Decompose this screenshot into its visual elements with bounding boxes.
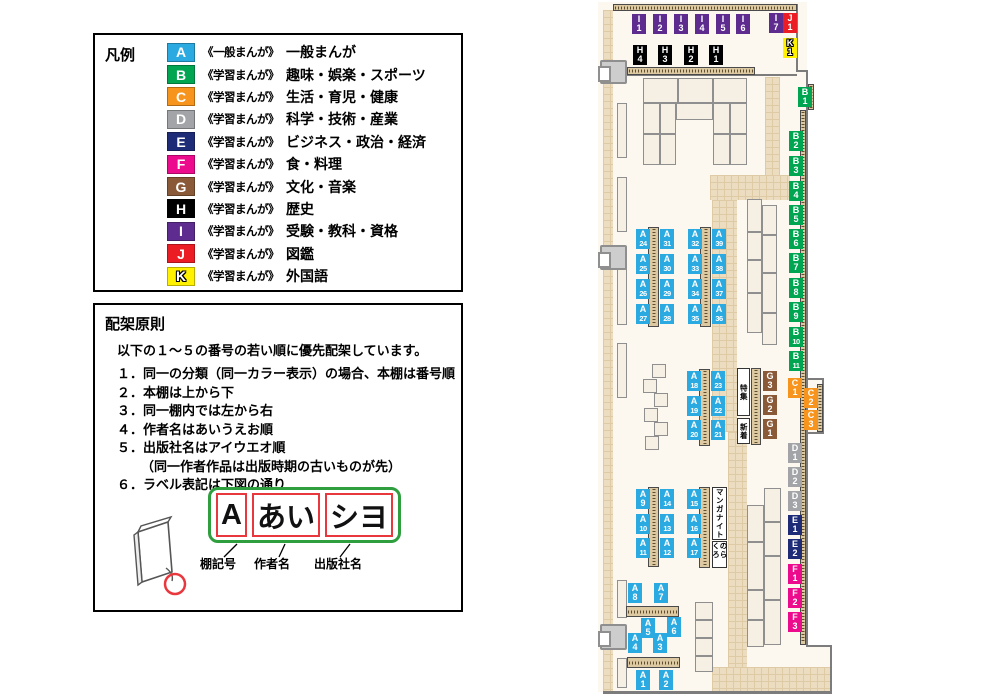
shelf-label-A13: A13 xyxy=(660,514,674,534)
shelf-block xyxy=(747,293,762,333)
legend-item-B: B《学習まんが》趣味・娯楽・スポーツ xyxy=(167,63,426,85)
shelf-block xyxy=(695,620,713,638)
shelf-label-A1: A1 xyxy=(636,670,650,690)
shelf-block xyxy=(747,505,764,542)
label-position-circle xyxy=(165,574,185,594)
shelf-block xyxy=(762,205,777,235)
legend-swatch-J: J xyxy=(167,244,195,263)
legend-swatch-C: C xyxy=(167,87,195,106)
legend-item-I: I《学習まんが》受験・教科・資格 xyxy=(167,220,426,242)
shelf-block xyxy=(730,103,747,134)
shelf-strip xyxy=(626,606,679,617)
legend-title: 凡例 xyxy=(105,44,135,65)
legend-item-A: A《一般まんが》一般まんが xyxy=(167,41,426,63)
shelf-label-I3: I3 xyxy=(674,14,688,34)
shelf-label-I7: I7 xyxy=(769,13,783,33)
shelf-label-A19: A19 xyxy=(687,396,701,416)
shelf-block xyxy=(762,273,777,313)
aisle-floor xyxy=(603,10,613,691)
legend-swatch-I: I xyxy=(167,222,195,241)
shelf-label-A18: A18 xyxy=(687,371,701,391)
shelf-label-A17: A17 xyxy=(687,538,701,558)
legend-scope: 《学習まんが》 xyxy=(202,246,279,262)
display-table xyxy=(654,393,668,407)
shelf-label-A26: A26 xyxy=(636,279,650,299)
shelf-label-B4: B4 xyxy=(789,181,803,201)
shelf-label-A31: A31 xyxy=(660,229,674,249)
legend-item-F: F《学習まんが》食・料理 xyxy=(167,153,426,175)
label-diagram-caption-3: 出版社名 xyxy=(314,555,362,572)
shelf-block xyxy=(676,103,713,120)
rule-item-3: ３．同一棚内では左から右 xyxy=(117,402,451,421)
shelf-label-A34: A34 xyxy=(688,279,702,299)
shelf-label-A23: A23 xyxy=(711,371,725,391)
shelf-label-B8: B8 xyxy=(789,278,803,298)
shelf-label-A32: A32 xyxy=(688,229,702,249)
legend-label: 図鑑 xyxy=(286,244,314,264)
shelf-map-poster: { "legend": { "title": "凡例", "items": [ … xyxy=(0,0,1000,700)
shelf-label-A20: A20 xyxy=(687,420,701,440)
rule-number: ４． xyxy=(117,421,143,440)
shelf-block xyxy=(747,542,764,590)
shelf-label-B7: B7 xyxy=(789,253,803,273)
shelf-label-C2: C2 xyxy=(804,388,818,408)
display-table xyxy=(654,422,668,436)
shelf-block xyxy=(764,522,781,556)
shelf-label-I6: I6 xyxy=(736,14,750,34)
shelf-label-I1: I1 xyxy=(632,14,646,34)
shelf-label-F1: F1 xyxy=(788,564,802,584)
rule-number: １． xyxy=(117,365,143,384)
shelf-block xyxy=(617,103,627,158)
shelf-label-H2: H2 xyxy=(684,45,698,65)
legend-label: 科学・技術・産業 xyxy=(286,109,398,129)
shelf-label-A8: A8 xyxy=(628,583,642,603)
shelf-block xyxy=(747,620,764,647)
shelf-label-A3: A3 xyxy=(653,633,667,653)
display-table xyxy=(643,379,657,393)
rule-item-5: ５．出版社名はアイウエオ順 xyxy=(117,439,451,458)
rule-number: ６． xyxy=(117,476,143,495)
shelf-label-D1: D1 xyxy=(788,443,802,463)
rules-intro: 以下の１～５の番号の若い順に優先配架しています。 xyxy=(117,340,451,359)
legend-item-H: H《学習まんが》歴史 xyxy=(167,198,426,220)
door xyxy=(600,60,627,84)
shelf-label-A6: A6 xyxy=(667,617,681,637)
shelf-label-A29: A29 xyxy=(660,279,674,299)
shelf-block xyxy=(617,177,627,232)
shelf-label-A35: A35 xyxy=(688,304,702,324)
label-diagram-caption-1: 棚記号 xyxy=(200,555,236,572)
wall xyxy=(755,74,797,76)
shelf-block xyxy=(617,658,627,688)
shelf-strip xyxy=(627,67,755,75)
shelf-block xyxy=(764,556,781,600)
shelf-label-A14: A14 xyxy=(660,489,674,509)
legend-item-G: G《学習まんが》文化・音楽 xyxy=(167,175,426,197)
shelf-block xyxy=(747,590,764,620)
display-table xyxy=(645,436,659,450)
shelf-label-A11: A11 xyxy=(636,538,650,558)
shelf-block xyxy=(643,134,660,165)
shelf-label-A22: A22 xyxy=(711,396,725,416)
legend-scope: 《学習まんが》 xyxy=(202,111,279,127)
sign-manga-night: マンガナイト xyxy=(712,487,727,540)
rule-text: 同一棚内では左から右 xyxy=(143,402,273,421)
shelf-label-B1: B1 xyxy=(798,87,812,107)
aisle-floor xyxy=(710,175,790,200)
wall xyxy=(806,72,808,645)
shelf-block xyxy=(617,268,627,325)
shelf-label-C1: C1 xyxy=(788,378,802,398)
shelf-label-A9: A9 xyxy=(636,489,650,509)
rule-number: ５． xyxy=(117,439,143,458)
legend-scope: 《学習まんが》 xyxy=(202,268,279,284)
book-icon xyxy=(138,522,172,582)
legend-scope: 《学習まんが》 xyxy=(202,223,279,239)
shelf-label-A21: A21 xyxy=(711,420,725,440)
shelf-label-A30: A30 xyxy=(660,254,674,274)
label-diagram-caption-2: 作者名 xyxy=(254,555,290,572)
shelf-block xyxy=(764,600,781,645)
shelf-block xyxy=(747,232,762,260)
legend-label: ビジネス・政治・経済 xyxy=(286,132,426,152)
legend-swatch-E: E xyxy=(167,132,195,151)
shelf-label-G1: G1 xyxy=(763,419,777,439)
legend-item-D: D《学習まんが》科学・技術・産業 xyxy=(167,108,426,130)
shelf-label-A12: A12 xyxy=(660,538,674,558)
shelf-label-B5: B5 xyxy=(789,205,803,225)
shelf-label-I5: I5 xyxy=(716,14,730,34)
shelf-label-B6: B6 xyxy=(789,229,803,249)
shelf-block xyxy=(764,488,781,522)
shelf-strip xyxy=(627,657,680,668)
wall xyxy=(603,691,832,694)
legend-label: 生活・育児・健康 xyxy=(286,87,398,107)
shelf-block xyxy=(660,134,676,165)
legend-swatch-B: B xyxy=(167,65,195,84)
shelf-label-H1: H1 xyxy=(709,45,723,65)
shelf-block xyxy=(762,313,777,345)
rule-item-1: １．同一の分類（同一カラー表示）の場合、本棚は番号順 xyxy=(117,365,451,384)
legend-label: 食・料理 xyxy=(286,154,342,174)
shelf-label-C3: C3 xyxy=(804,410,818,430)
shelf-block xyxy=(695,602,713,620)
shelf-block xyxy=(730,134,747,165)
rules-title: 配架原則 xyxy=(105,313,451,334)
rule-text: 本棚は上から下 xyxy=(143,384,234,403)
wall xyxy=(830,645,832,693)
label-diagram-illustration xyxy=(120,500,400,600)
shelf-block xyxy=(747,199,762,232)
legend-item-K: K《学習まんが》外国語 xyxy=(167,265,426,287)
legend-label: 歴史 xyxy=(286,199,314,219)
shelf-label-J1: J1 xyxy=(783,13,797,33)
shelf-label-B3: B3 xyxy=(789,156,803,176)
shelf-label-H4: H4 xyxy=(633,45,647,65)
rules-list: １．同一の分類（同一カラー表示）の場合、本棚は番号順２．本棚は上から下３．同一棚… xyxy=(117,365,451,495)
shelf-block xyxy=(660,103,676,134)
legend-item-C: C《学習まんが》生活・育児・健康 xyxy=(167,86,426,108)
aisle-floor xyxy=(728,432,747,669)
shelf-block xyxy=(695,656,713,672)
shelf-label-G2: G2 xyxy=(763,395,777,415)
shelf-label-A37: A37 xyxy=(712,279,726,299)
legend-scope: 《学習まんが》 xyxy=(202,134,279,150)
door xyxy=(600,245,627,270)
legend-scope: 《一般まんが》 xyxy=(202,44,279,60)
aisle-floor xyxy=(712,667,830,691)
legend-label: 趣味・娯楽・スポーツ xyxy=(286,65,426,85)
shelf-block xyxy=(713,78,747,103)
shelf-label-A27: A27 xyxy=(636,304,650,324)
sign-new-arrivals: 新着 xyxy=(737,418,750,444)
legend-swatch-G: G xyxy=(167,177,195,196)
rule-item-4: ４．作者名はあいうえお順 xyxy=(117,421,451,440)
rule-number: ３． xyxy=(117,402,143,421)
rule-text: 出版社名はアイウエオ順 xyxy=(143,439,285,458)
shelf-label-D3: D3 xyxy=(788,491,802,511)
shelf-block xyxy=(747,260,762,293)
shelf-label-D2: D2 xyxy=(788,467,802,487)
shelf-label-G3: G3 xyxy=(763,371,777,391)
shelf-label-A39: A39 xyxy=(712,229,726,249)
shelf-label-A4: A4 xyxy=(628,633,642,653)
shelf-label-A24: A24 xyxy=(636,229,650,249)
shelf-label-A15: A15 xyxy=(687,489,701,509)
legend-items: A《一般まんが》一般まんがB《学習まんが》趣味・娯楽・スポーツC《学習まんが》生… xyxy=(167,41,426,287)
legend-scope: 《学習まんが》 xyxy=(202,156,279,172)
legend-scope: 《学習まんが》 xyxy=(202,67,279,83)
shelf-label-H3: H3 xyxy=(658,45,672,65)
rule-number: ２． xyxy=(117,384,143,403)
legend-swatch-K: K xyxy=(167,267,195,286)
display-table xyxy=(652,364,666,378)
shelf-label-E1: E1 xyxy=(788,515,802,535)
legend-swatch-H: H xyxy=(167,199,195,218)
shelf-label-A28: A28 xyxy=(660,304,674,324)
shelf-label-A33: A33 xyxy=(688,254,702,274)
legend-swatch-A: A xyxy=(167,43,195,62)
shelf-label-B2: B2 xyxy=(789,131,803,151)
shelf-label-B9: B9 xyxy=(789,302,803,322)
legend-swatch-F: F xyxy=(167,155,195,174)
shelf-block xyxy=(713,103,730,134)
legend-box: 凡例 A《一般まんが》一般まんがB《学習まんが》趣味・娯楽・スポーツC《学習まん… xyxy=(93,33,463,292)
legend-label: 受験・教科・資格 xyxy=(286,221,398,241)
shelf-block xyxy=(617,343,627,398)
door xyxy=(600,624,627,650)
rule-item-2: ２．本棚は上から下 xyxy=(117,384,451,403)
legend-label: 一般まんが xyxy=(286,42,356,62)
shelf-label-B10: B10 xyxy=(789,327,803,347)
shelf-strip xyxy=(751,368,761,445)
rule-subtext: （同一作者作品は出版時期の古いものが先） xyxy=(141,458,451,477)
sign-feature: 特集 xyxy=(737,368,750,416)
shelf-block xyxy=(713,134,730,165)
rule-text: 作者名はあいうえお順 xyxy=(143,421,273,440)
shelf-block xyxy=(695,638,713,656)
sign-norakuro: のらくろ xyxy=(712,541,727,568)
shelf-label-A36: A36 xyxy=(712,304,726,324)
legend-swatch-D: D xyxy=(167,110,195,129)
wall xyxy=(806,432,824,434)
aisle-floor xyxy=(765,77,780,177)
shelf-label-E2: E2 xyxy=(788,539,802,559)
shelf-label-A7: A7 xyxy=(654,583,668,603)
shelf-block xyxy=(643,103,660,134)
shelf-label-A2: A2 xyxy=(659,670,673,690)
wall xyxy=(806,645,832,647)
shelf-label-A38: A38 xyxy=(712,254,726,274)
shelf-block xyxy=(762,235,777,273)
legend-scope: 《学習まんが》 xyxy=(202,179,279,195)
shelf-block xyxy=(643,78,678,103)
shelf-block xyxy=(678,78,713,103)
shelf-label-A16: A16 xyxy=(687,514,701,534)
legend-scope: 《学習まんが》 xyxy=(202,89,279,105)
legend-label: 文化・音楽 xyxy=(286,177,356,197)
legend-scope: 《学習まんが》 xyxy=(202,201,279,217)
rule-text: 同一の分類（同一カラー表示）の場合、本棚は番号順 xyxy=(143,365,455,384)
shelf-label-I4: I4 xyxy=(695,14,709,34)
shelf-label-B11: B11 xyxy=(789,351,803,371)
shelf-label-F2: F2 xyxy=(788,588,802,608)
display-table xyxy=(644,408,658,422)
legend-item-J: J《学習まんが》図鑑 xyxy=(167,243,426,265)
shelf-label-A25: A25 xyxy=(636,254,650,274)
legend-item-E: E《学習まんが》ビジネス・政治・経済 xyxy=(167,131,426,153)
shelf-label-K1: K1 xyxy=(783,38,797,58)
shelf-label-A10: A10 xyxy=(636,514,650,534)
legend-label: 外国語 xyxy=(286,266,328,286)
shelf-label-I2: I2 xyxy=(653,14,667,34)
shelf-strip xyxy=(613,4,797,11)
shelf-label-F3: F3 xyxy=(788,612,802,632)
